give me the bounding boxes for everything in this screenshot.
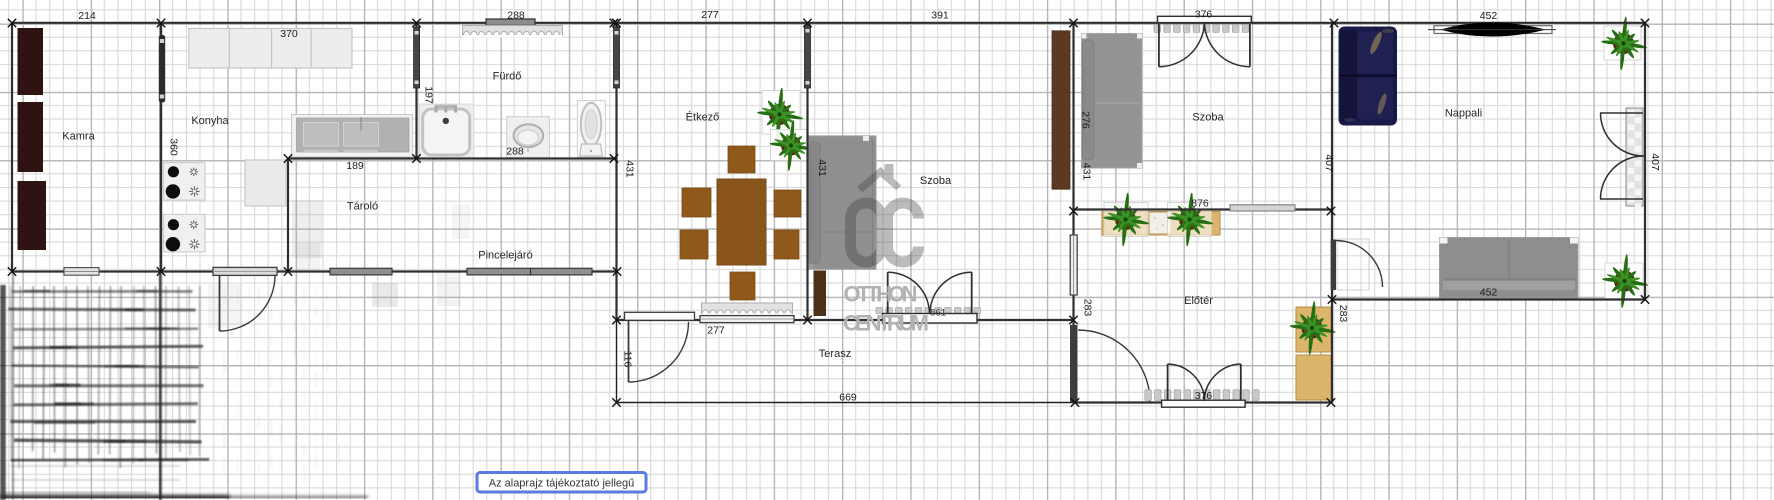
svg-text:861: 861	[930, 308, 946, 319]
svg-text:288: 288	[506, 146, 524, 158]
svg-text:189: 189	[346, 160, 364, 172]
svg-text:283: 283	[1337, 305, 1349, 323]
svg-text:276: 276	[1080, 111, 1092, 129]
svg-text:Étkező: Étkező	[686, 111, 720, 124]
svg-text:360: 360	[168, 138, 180, 156]
svg-text:391: 391	[931, 10, 949, 22]
svg-text:Terasz: Terasz	[819, 348, 851, 360]
svg-text:431: 431	[624, 160, 636, 178]
svg-text:452: 452	[1480, 287, 1498, 299]
svg-text:277: 277	[707, 325, 725, 337]
svg-text:116: 116	[622, 351, 634, 368]
svg-text:277: 277	[701, 9, 719, 21]
svg-text:452: 452	[1480, 10, 1498, 22]
svg-text:Pincelejáró: Pincelejáró	[478, 250, 532, 262]
svg-text:Nappali: Nappali	[1445, 108, 1482, 120]
svg-text:431: 431	[816, 159, 828, 177]
svg-text:Konyha: Konyha	[191, 115, 229, 127]
svg-text:370: 370	[280, 28, 298, 40]
svg-text:Kamra: Kamra	[62, 131, 95, 143]
svg-text:407: 407	[1323, 154, 1335, 172]
svg-text:OTTHON: OTTHON	[844, 282, 918, 307]
svg-text:Szoba: Szoba	[1192, 112, 1224, 124]
svg-text:431: 431	[1081, 163, 1093, 181]
svg-text:376: 376	[1195, 390, 1213, 402]
svg-text:Tároló: Tároló	[347, 201, 378, 213]
svg-text:Szoba: Szoba	[920, 175, 952, 187]
svg-text:669: 669	[839, 392, 857, 404]
svg-text:407: 407	[1649, 153, 1661, 171]
svg-text:283: 283	[1082, 299, 1094, 317]
svg-text:376: 376	[1195, 9, 1213, 21]
svg-text:CENTRUM: CENTRUM	[843, 311, 929, 336]
svg-text:Az alaprajz tájékoztató jelleg: Az alaprajz tájékoztató jellegű	[489, 478, 635, 490]
svg-text:288: 288	[507, 10, 525, 22]
svg-text:214: 214	[78, 10, 96, 22]
svg-text:876: 876	[1191, 198, 1209, 210]
svg-text:Fürdő: Fürdő	[493, 71, 522, 83]
svg-text:Előtér: Előtér	[1184, 295, 1213, 307]
svg-text:197: 197	[423, 86, 435, 104]
